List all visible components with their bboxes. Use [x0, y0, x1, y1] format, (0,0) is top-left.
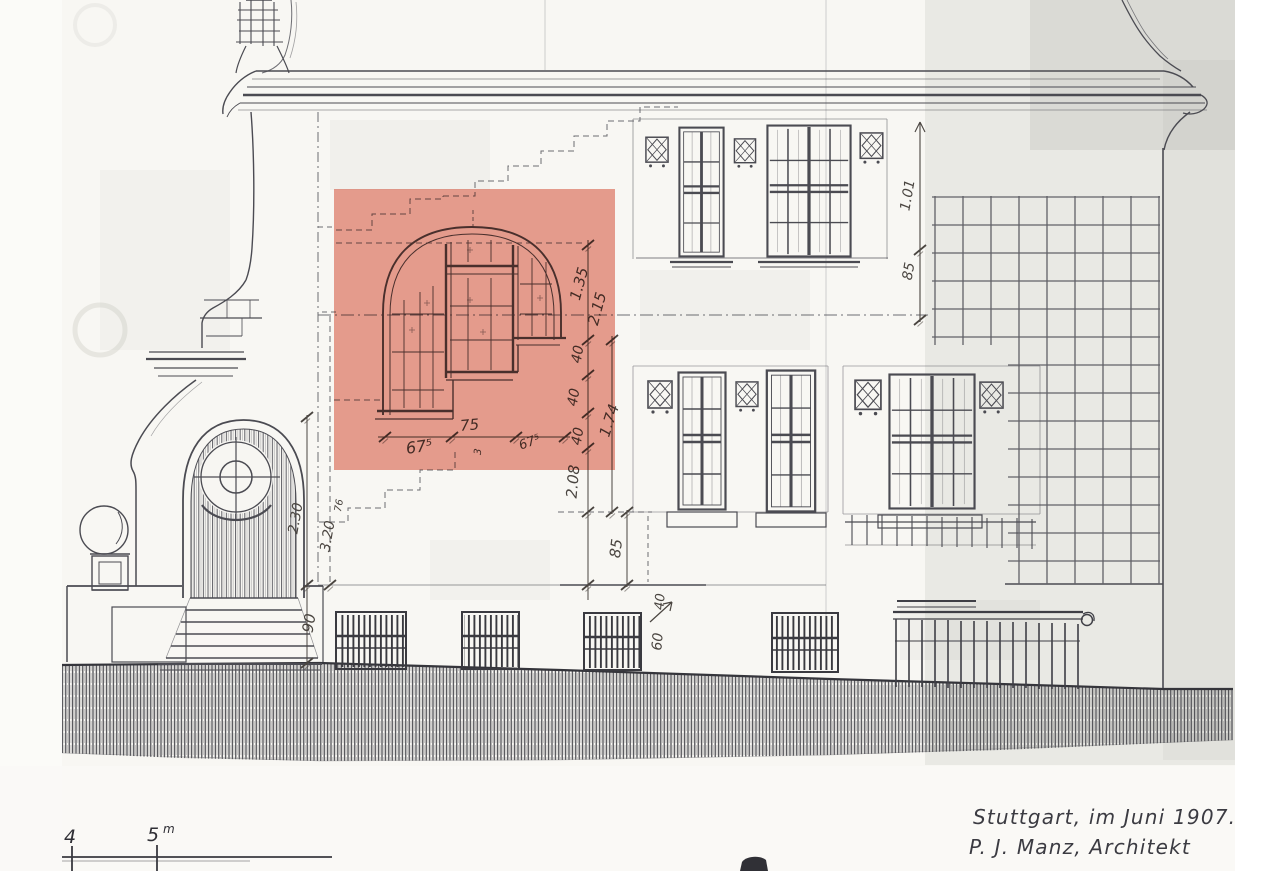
- basement-window: [772, 613, 838, 672]
- basement-window: [584, 613, 641, 670]
- dimension-label: 90: [299, 612, 320, 634]
- architectural-elevation-drawing: 1.35 2.15 40 40 40 1.74 2.08 67⁵ 75 3 67…: [0, 0, 1280, 871]
- scale-tick-label-5: 5: [147, 824, 159, 846]
- dimension-label: 60: [649, 632, 666, 651]
- highlight-overlay: [334, 189, 615, 470]
- dimension-label: 85: [606, 538, 626, 559]
- basement-window: [336, 612, 406, 669]
- basement-window: [462, 612, 519, 669]
- scale-unit-label: m: [163, 822, 175, 836]
- signature-location-date: Stuttgart, im Juni 1907.: [973, 805, 1236, 829]
- scanned-elevation-page: 1.35 2.15 40 40 40 1.74 2.08 67⁵ 75 3 67…: [0, 0, 1280, 871]
- scale-tick-label-4: 4: [64, 826, 76, 848]
- dimension-label: 85: [900, 261, 919, 281]
- dimension-label: 76: [333, 498, 346, 512]
- dimension-label: 40: [652, 593, 668, 611]
- signature-architect: P. J. Manz, Architekt: [969, 835, 1191, 859]
